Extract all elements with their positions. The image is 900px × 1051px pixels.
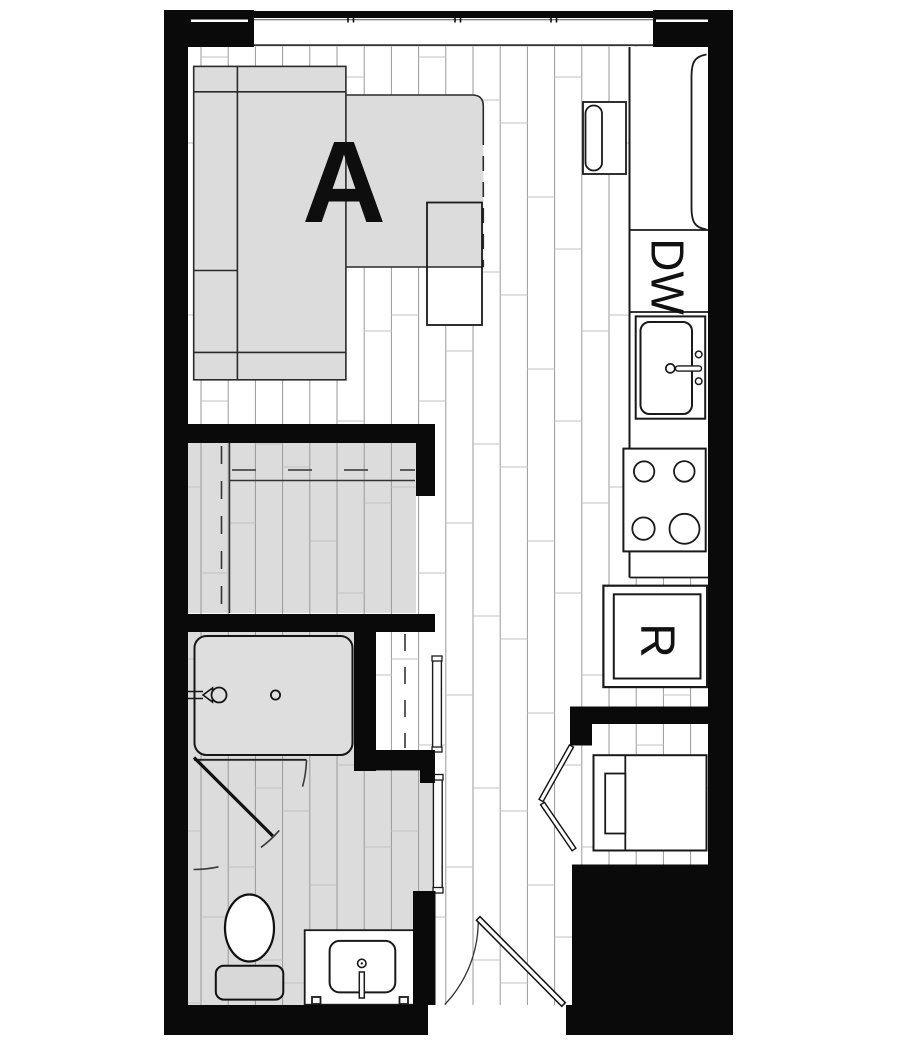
svg-text:DW: DW	[642, 238, 694, 315]
svg-text:R: R	[630, 623, 683, 658]
svg-text:A: A	[302, 117, 386, 247]
